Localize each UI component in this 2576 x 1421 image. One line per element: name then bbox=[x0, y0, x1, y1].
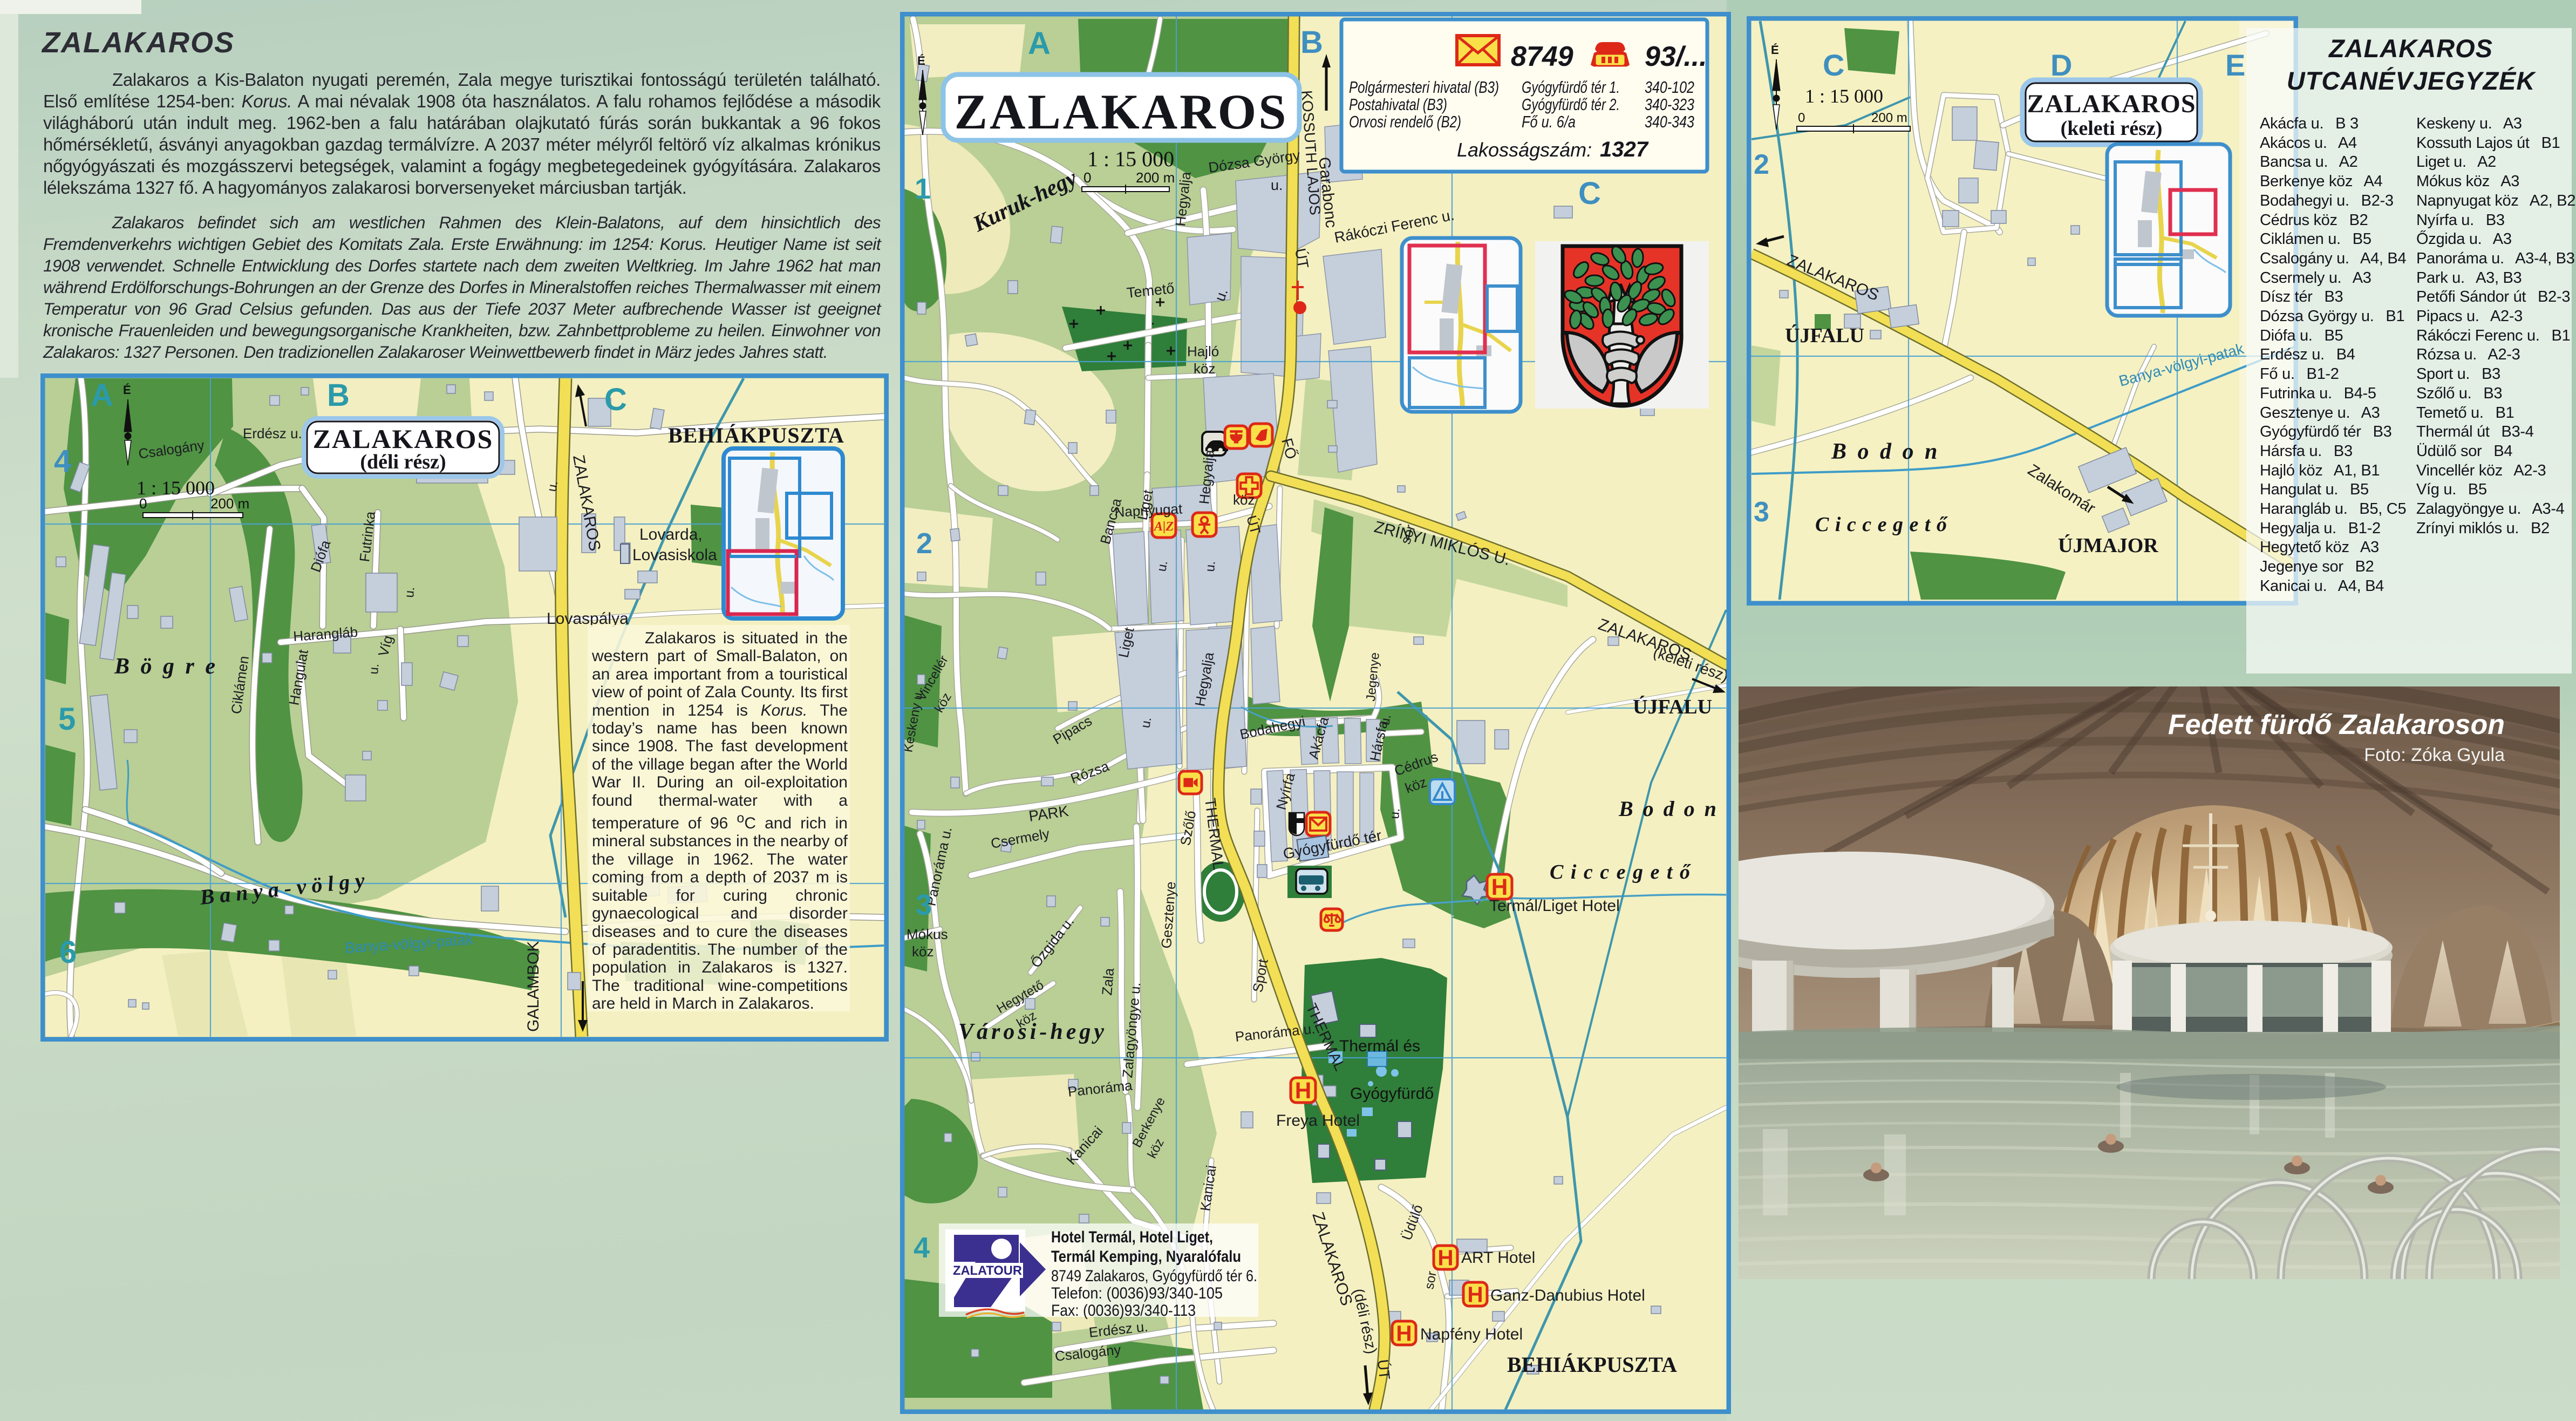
svg-text:0: 0 bbox=[1798, 111, 1805, 125]
svg-text:1327: 1327 bbox=[1600, 138, 1649, 161]
svg-text:C: C bbox=[1823, 48, 1844, 82]
svg-text:E: E bbox=[2225, 48, 2245, 82]
svg-text:ÚJMAJOR: ÚJMAJOR bbox=[2058, 534, 2158, 557]
svg-text:200 m: 200 m bbox=[1871, 111, 1907, 125]
svg-text:C i c c e g e t ő: C i c c e g e t ő bbox=[1815, 513, 1948, 536]
svg-text:2: 2 bbox=[916, 527, 932, 560]
svg-text:H: H bbox=[1437, 1246, 1453, 1270]
svg-text:köz: köz bbox=[912, 943, 933, 960]
svg-text:ZALAKAROS: ZALAKAROS bbox=[313, 424, 494, 454]
svg-text:1 : 15 000: 1 : 15 000 bbox=[137, 477, 215, 499]
svg-text:(déli rész): (déli rész) bbox=[360, 451, 446, 473]
svg-text:3: 3 bbox=[1754, 497, 1769, 528]
svg-text:340-102: 340-102 bbox=[1645, 78, 1694, 97]
svg-text:Hotel Termál, Hotel Liget,: Hotel Termál, Hotel Liget, bbox=[1051, 1228, 1213, 1246]
svg-text:B: B bbox=[327, 378, 350, 413]
svg-text:É: É bbox=[1771, 43, 1779, 57]
svg-text:BEHIÁKPUSZTA: BEHIÁKPUSZTA bbox=[668, 423, 844, 447]
svg-text:Ganz-Danubius Hotel: Ganz-Danubius Hotel bbox=[1490, 1287, 1645, 1304]
svg-text:Mókus: Mókus bbox=[907, 926, 948, 942]
svg-text:ÚJFALU: ÚJFALU bbox=[1785, 324, 1864, 347]
svg-text:1 : 15 000: 1 : 15 000 bbox=[1805, 85, 1883, 107]
svg-text:ÚT: ÚT bbox=[1292, 247, 1312, 270]
svg-text:ART Hotel: ART Hotel bbox=[1461, 1249, 1535, 1267]
svg-text:Freya Hotel: Freya Hotel bbox=[1276, 1112, 1360, 1130]
svg-text:1 : 15 000: 1 : 15 000 bbox=[1087, 147, 1174, 171]
svg-text:Gyógyfürdő tér 2.: Gyógyfürdő tér 2. bbox=[1522, 95, 1620, 114]
svg-text:Gyógyfürdő tér 1.: Gyógyfürdő tér 1. bbox=[1522, 78, 1620, 97]
svg-text:GALAMBOK: GALAMBOK bbox=[524, 941, 542, 1032]
svg-text:u.: u. bbox=[1387, 807, 1403, 819]
svg-text:B: B bbox=[1300, 25, 1323, 60]
svg-text:Lakosságszám:: Lakosságszám: bbox=[1457, 139, 1592, 161]
svg-text:A|Z: A|Z bbox=[1153, 519, 1174, 534]
svg-text:C: C bbox=[604, 382, 627, 417]
svg-text:0: 0 bbox=[139, 495, 147, 512]
svg-text:Fedett fürdő Zalakaroson: Fedett fürdő Zalakaroson bbox=[2168, 709, 2505, 740]
svg-text:340-323: 340-323 bbox=[1645, 95, 1694, 114]
svg-text:u.: u. bbox=[402, 586, 418, 598]
svg-text:köz: köz bbox=[1233, 492, 1255, 508]
svg-text:(keleti rész): (keleti rész) bbox=[2061, 117, 2163, 140]
svg-text:Foto: Zóka Gyula: Foto: Zóka Gyula bbox=[2364, 745, 2505, 765]
svg-text:C i c c e g e t ő: C i c c e g e t ő bbox=[1550, 861, 1691, 883]
svg-text:A: A bbox=[1028, 26, 1051, 61]
svg-text:Fő u. 6/a: Fő u. 6/a bbox=[1522, 112, 1576, 131]
svg-text:2: 2 bbox=[1754, 149, 1769, 180]
svg-text:H: H bbox=[1396, 1321, 1412, 1346]
svg-text:5: 5 bbox=[58, 702, 76, 737]
svg-text:A: A bbox=[91, 378, 113, 413]
svg-text:É: É bbox=[123, 383, 131, 397]
svg-text:Gyógyfürdő: Gyógyfürdő bbox=[1350, 1085, 1434, 1103]
svg-text:u.: u. bbox=[1271, 177, 1283, 193]
svg-text:340-343: 340-343 bbox=[1645, 112, 1694, 131]
svg-text:Fax: (0036)93/340-113: Fax: (0036)93/340-113 bbox=[1051, 1302, 1196, 1320]
svg-text:ZALAKAROS: ZALAKAROS bbox=[955, 84, 1289, 139]
svg-text:B ö g r e: B ö g r e bbox=[114, 654, 218, 679]
svg-text:H: H bbox=[1467, 1282, 1483, 1307]
svg-text:köz: köz bbox=[1194, 361, 1215, 377]
svg-text:H: H bbox=[1491, 874, 1508, 900]
svg-text:3: 3 bbox=[916, 889, 932, 921]
svg-text:4: 4 bbox=[54, 444, 71, 479]
svg-text:Lovasiskola: Lovasiskola bbox=[632, 546, 717, 564]
svg-text:Polgármesteri hivatal (B3): Polgármesteri hivatal (B3) bbox=[1349, 78, 1499, 97]
svg-text:Termál/Liget Hotel: Termál/Liget Hotel bbox=[1489, 897, 1620, 915]
svg-text:Lovarda,: Lovarda, bbox=[639, 526, 703, 543]
svg-text:200 m: 200 m bbox=[210, 495, 249, 512]
svg-text:0: 0 bbox=[1083, 169, 1091, 186]
svg-text:ÚT: ÚT bbox=[1374, 1358, 1393, 1380]
svg-text:ÚJFALU: ÚJFALU bbox=[1633, 696, 1712, 718]
svg-text:Thermál és: Thermál és bbox=[1339, 1037, 1420, 1055]
svg-text:B o d o n: B o d o n bbox=[1618, 797, 1719, 821]
svg-text:200 m: 200 m bbox=[1136, 169, 1175, 186]
svg-text:1: 1 bbox=[915, 173, 931, 205]
svg-text:BEHIÁKPUSZTA: BEHIÁKPUSZTA bbox=[1507, 1352, 1677, 1377]
svg-text:Orvosi rendelő (B2): Orvosi rendelő (B2) bbox=[1349, 112, 1461, 131]
svg-text:ZALATOUR: ZALATOUR bbox=[953, 1263, 1022, 1278]
svg-text:4: 4 bbox=[914, 1232, 930, 1264]
svg-text:Termál Kemping, Nyaralófalu: Termál Kemping, Nyaralófalu bbox=[1051, 1248, 1241, 1266]
svg-text:Postahivatal (B3): Postahivatal (B3) bbox=[1349, 95, 1447, 114]
svg-text:Telefon: (0036)93/340-105: Telefon: (0036)93/340-105 bbox=[1051, 1284, 1223, 1302]
svg-text:8749 Zalakaros, Gyógyfürdő tér: 8749 Zalakaros, Gyógyfürdő tér 6. bbox=[1051, 1267, 1257, 1285]
svg-text:Városi-hegy: Városi-hegy bbox=[958, 1019, 1107, 1044]
svg-text:É: É bbox=[917, 54, 925, 67]
svg-text:93/...: 93/... bbox=[1645, 41, 1707, 72]
svg-text:u.: u. bbox=[1203, 560, 1218, 572]
svg-text:B o d o n: B o d o n bbox=[1831, 439, 1940, 464]
svg-text:C: C bbox=[1578, 176, 1601, 211]
svg-text:Erdész u.: Erdész u. bbox=[243, 425, 302, 441]
svg-text:H: H bbox=[1295, 1078, 1312, 1103]
svg-text:D: D bbox=[2050, 48, 2072, 82]
svg-text:Napfény Hotel: Napfény Hotel bbox=[1420, 1325, 1523, 1343]
svg-text:u.: u. bbox=[366, 663, 382, 675]
svg-text:8749: 8749 bbox=[1511, 41, 1573, 72]
svg-text:ZALAKAROS: ZALAKAROS bbox=[2027, 90, 2196, 118]
svg-text:6: 6 bbox=[59, 935, 77, 970]
svg-text:Hajló: Hajló bbox=[1187, 343, 1219, 359]
svg-text:sor: sor bbox=[1422, 1270, 1439, 1291]
svg-text:Zala: Zala bbox=[1099, 967, 1117, 996]
